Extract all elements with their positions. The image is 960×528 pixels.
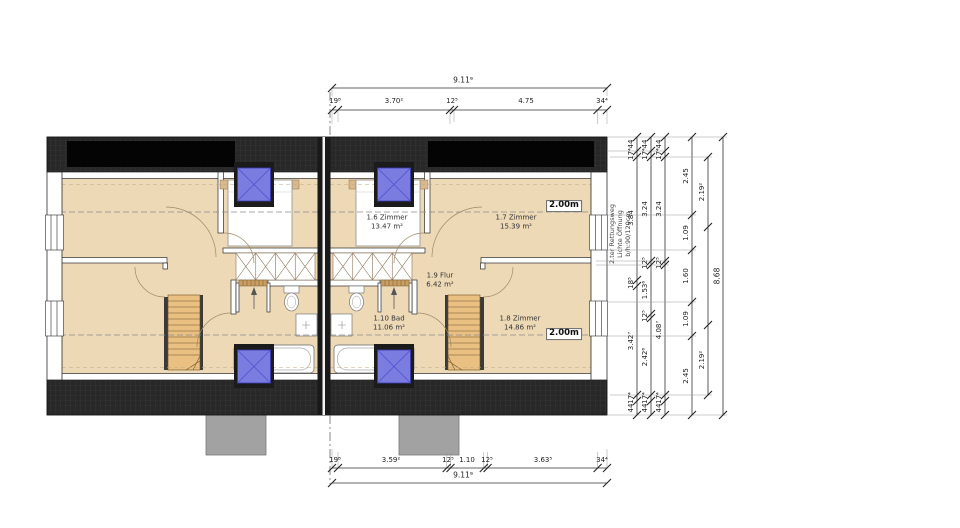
built-in-closet: [333, 253, 412, 280]
room-label-zimmer-1-6: 1.6 Zimmer 13.47 m²: [367, 213, 408, 231]
room-label-zimmer-1-7: 1.7 Zimmer 15.39 m²: [496, 213, 537, 231]
room-area: 6.42 m²: [426, 280, 453, 288]
dim-r4-4: 2.45: [682, 368, 690, 384]
roof-window-bottom: [374, 344, 414, 388]
headroom-label-top: 2.00m: [546, 200, 582, 212]
note-line-3: b/h:90/120cm: [624, 211, 632, 256]
dim-r3-2: 3.24: [655, 201, 663, 217]
dim-bottom-seg-1: 3.59²: [382, 456, 400, 464]
dim-r3-5: 17⁴: [655, 392, 663, 404]
dim-r2-4: 1.53⁶: [641, 281, 649, 299]
solar-panel-right: [428, 141, 594, 167]
dim-r1-3: 18⁵: [627, 277, 635, 289]
headroom-label-bottom: 2.00m: [546, 328, 582, 340]
dim-bottom-seg-4: 12⁵: [481, 456, 493, 464]
wc-tank: [349, 286, 364, 293]
room-name: 1.6 Zimmer: [367, 213, 408, 221]
dim-top-seg-4: 34⁴: [596, 97, 608, 105]
room-name: 1.10 Bad: [373, 314, 404, 322]
solar-panel-left: [67, 141, 235, 167]
dim-r1-1: 17⁴: [627, 148, 635, 160]
room-area: 15.39 m²: [500, 222, 532, 230]
dim-r3-4: 4.08⁷: [655, 321, 663, 339]
escape-route-note: 2.ter Rettungsweg Lichte Öffnung b/h:90/…: [608, 204, 632, 264]
dim-r4-1: 1.09: [682, 225, 690, 241]
dwelling-unit: [330, 162, 592, 388]
dim-top-seg-2: 12⁵: [446, 97, 458, 105]
dim-top-seg-1: 3.70²: [385, 97, 403, 105]
staircase: [445, 295, 484, 370]
dim-r4-0: 2.45: [682, 168, 690, 184]
dim-bottom-seg-3: 1.10: [459, 456, 475, 464]
dim-r2-2: 3.24: [641, 201, 649, 217]
room-area: 13.47 m²: [371, 222, 403, 230]
dim-right-total: 8.68: [713, 268, 722, 285]
dim-r2-8: 44: [641, 404, 649, 413]
dim-r3-6: 44: [655, 404, 663, 413]
gable-wall-right: [590, 172, 608, 380]
dim-bottom-seg-6: 34⁴: [596, 456, 608, 464]
dim-r2-1: 17⁴: [641, 148, 649, 160]
dim-bottom-total: 9.11⁹: [453, 471, 473, 480]
dim-r4-3: 1.09: [682, 311, 690, 327]
dwelling-unit-mirrored: [56, 162, 318, 388]
room-label-bad-1-10: 1.10 Bad 11.06 m²: [373, 314, 405, 332]
dim-r5-1: 2.19²: [698, 351, 706, 369]
dim-r2-5: 12⁵: [641, 310, 649, 322]
party-wall: [318, 137, 331, 415]
room-name: 1.9 Flur: [427, 271, 454, 279]
dim-r1-5: 17⁴: [627, 392, 635, 404]
dim-r1-6: 44: [627, 404, 635, 413]
dim-bottom-seg-2: 12⁵: [442, 456, 454, 464]
room-area: 11.06 m²: [373, 323, 405, 331]
wc-bowl: [350, 293, 364, 311]
roof-window-top: [374, 162, 414, 207]
room-name: 1.7 Zimmer: [496, 213, 537, 221]
room-label-zimmer-1-8: 1.8 Zimmer 14.86 m²: [500, 314, 541, 332]
dim-top-seg-3: 4.75: [518, 97, 534, 105]
dim-r4-2: 1.60: [682, 268, 690, 284]
dim-r2-3: 12⁵: [641, 257, 649, 269]
room-name: 1.8 Zimmer: [500, 314, 541, 322]
dim-top-seg-0: 19⁸: [329, 97, 341, 105]
gable-wall-left: [46, 172, 64, 380]
dim-bottom-seg-0: 19⁸: [329, 456, 341, 464]
floorplan-page: 9.11⁹ 19⁸ 3.70² 12⁵ 4.75 34⁴ 19⁸ 3.59² 1…: [0, 0, 960, 528]
dim-r2-7: 17⁴: [641, 392, 649, 404]
dim-r3-3: 12⁵: [655, 257, 663, 269]
dim-top-total: 9.11⁹: [453, 76, 473, 85]
dim-bottom-seg-5: 3.63⁵: [534, 456, 552, 464]
room-label-flur-1-9: 1.9 Flur 6.42 m²: [426, 271, 453, 289]
note-line-2: Lichte Öffnung: [616, 210, 624, 258]
room-area: 14.86 m²: [504, 323, 536, 331]
dim-r1-4: 3.42⁷: [627, 332, 635, 350]
porch-blocks: [206, 414, 459, 455]
dim-r2-6: 2.42⁶: [641, 348, 649, 366]
note-line-1: 2.ter Rettungsweg: [608, 204, 616, 264]
floorplan-drawing: [0, 0, 960, 528]
dim-r5-0: 2.19²: [698, 183, 706, 201]
dim-r3-1: 17⁴: [655, 148, 663, 160]
